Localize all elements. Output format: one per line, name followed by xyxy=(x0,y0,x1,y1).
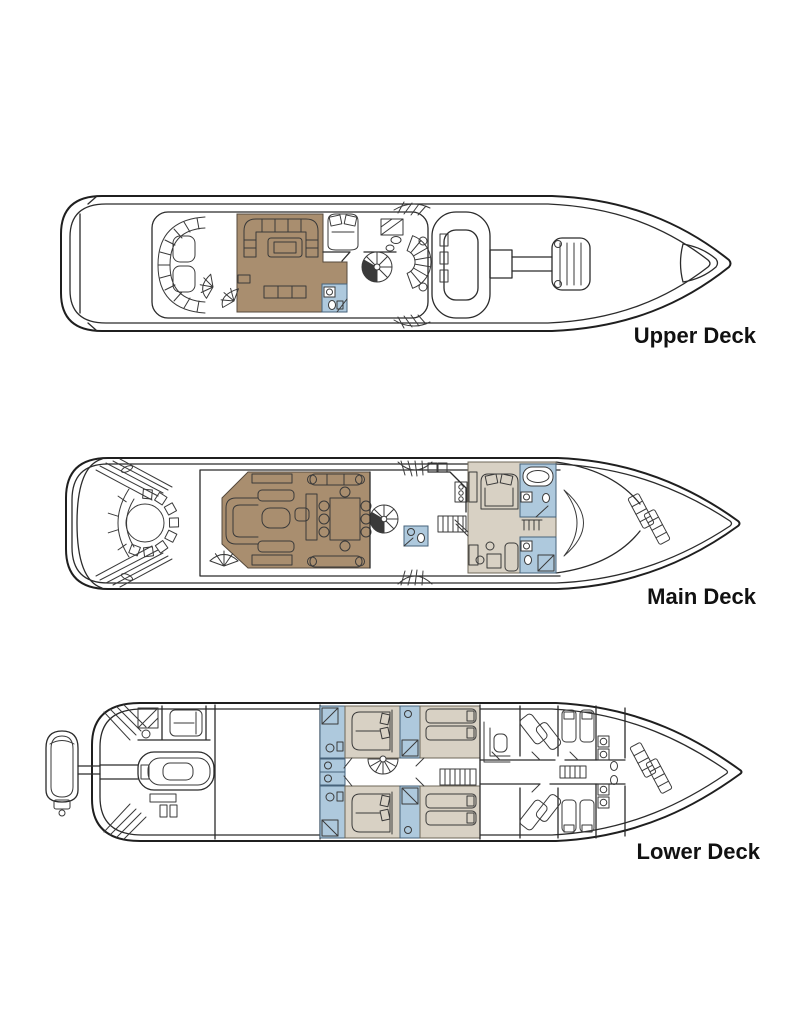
crane-winch xyxy=(552,238,590,290)
skylounge-bathroom xyxy=(322,284,347,312)
aft-deck-dining xyxy=(96,459,179,587)
lobby-fan-stair xyxy=(368,756,398,774)
crew-stairs xyxy=(560,766,586,778)
ensuite-bath xyxy=(400,786,420,838)
yacht-deck-plan-figure: Upper Deck Main Deck Lower Deck xyxy=(0,0,800,1036)
foredeck xyxy=(564,490,670,556)
upper-hull xyxy=(61,196,731,331)
toilet xyxy=(611,762,618,771)
main-deck-plan xyxy=(66,458,740,589)
lower-deck-label: Lower Deck xyxy=(560,839,760,865)
toilet xyxy=(611,776,618,785)
main-hull xyxy=(66,458,740,589)
yacht-decks-drawing xyxy=(0,0,800,1036)
dryer xyxy=(598,749,609,760)
jet-tender xyxy=(148,758,210,785)
bow-sunpad xyxy=(681,244,718,282)
aft-table xyxy=(173,236,195,262)
captain-cabin xyxy=(323,214,403,261)
equipment xyxy=(150,794,176,802)
toilet xyxy=(525,556,532,565)
crew-mess-table xyxy=(494,734,507,752)
washer xyxy=(598,736,609,747)
guest-cabins xyxy=(320,705,480,839)
spiral-staircase-upper xyxy=(362,252,392,282)
upper-deck-label: Upper Deck xyxy=(556,323,756,349)
lazarette-garage xyxy=(100,705,214,839)
engine-room-bulkheads xyxy=(215,705,320,839)
twin-cabin xyxy=(420,706,480,758)
upper-deck-plan xyxy=(61,196,731,331)
main-salon xyxy=(222,472,371,568)
instrument-pod xyxy=(419,283,427,291)
ensuite-bath xyxy=(400,706,420,758)
lower-deck-plan xyxy=(46,703,742,841)
round-table xyxy=(126,504,164,542)
curved-seat xyxy=(564,490,584,556)
forepeak xyxy=(630,742,673,794)
foyer-and-galley xyxy=(370,463,467,568)
toilet xyxy=(329,301,336,310)
aft-bench-seating xyxy=(158,217,205,313)
helm-console xyxy=(386,234,448,291)
master-suite xyxy=(455,462,556,573)
mast-and-crane xyxy=(490,238,590,290)
main-deck-label: Main Deck xyxy=(556,584,756,610)
toilet xyxy=(543,494,550,503)
deckhouse-front xyxy=(556,462,640,573)
crew-mess-bench xyxy=(484,722,510,762)
